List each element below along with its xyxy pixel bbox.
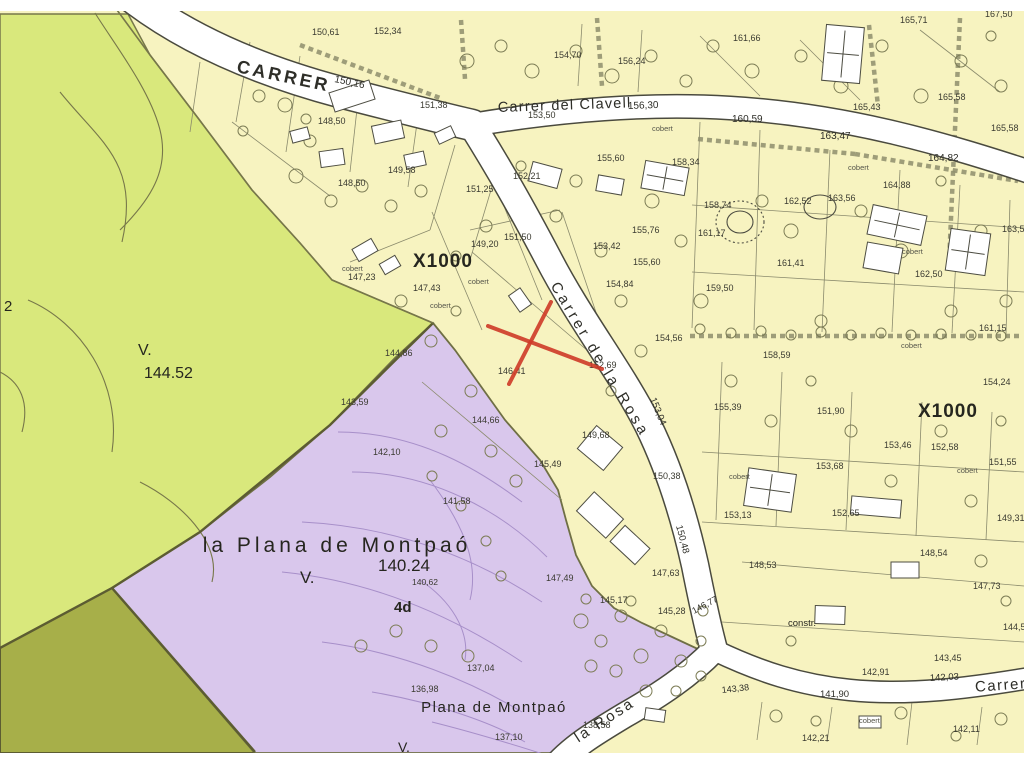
elevation-label: 161,15 [979,323,1007,333]
elevation-label: 147,73 [973,581,1001,591]
elevation-label: 147,63 [652,568,680,578]
elevation-label: 155,39 [714,402,742,412]
elevation-label: 165,43 [853,102,881,112]
road-name-label: 160,59 [732,114,763,125]
map-viewport: 150,61152,34151,38148,50149,58148,50151,… [0,0,1024,768]
cobert-label: cobert [342,264,364,273]
elevation-label: 142,91 [862,667,890,677]
elevation-label: 152,58 [931,442,959,452]
cobert-label: cobert [902,247,924,256]
frame-bottom [0,753,1024,768]
road-junction [701,637,727,663]
road-name-label: 142,03 [930,671,960,684]
elevation-label: 142,11 [953,724,980,734]
elevation-label: 161,17 [698,228,726,238]
elevation-label: 143,45 [934,653,962,663]
elevation-label: 154,70 [554,50,582,60]
cobert-label: cobert [848,163,870,172]
road-name-label: 163,47 [820,131,851,142]
elevation-label: 151,90 [817,406,845,416]
elevation-label: 145,49 [534,459,562,469]
elevation-label: 161,66 [733,33,761,43]
zone-name-label: X1000 [918,401,978,422]
building [863,242,903,274]
elevation-label: 151,50 [504,232,532,242]
elevation-label: 142,21 [802,733,830,743]
elevation-label: 158,59 [763,350,791,360]
elevation-label: 163,54 [1002,224,1024,234]
elevation-label: 155,60 [597,153,625,163]
elevation-label: 150,61 [312,27,340,37]
elevation-label: 153,46 [884,440,912,450]
elevation-label: 140,62 [412,577,438,587]
cobert-label: cobert [729,472,751,481]
zone-name-label: constr. [788,618,816,629]
elevation-label: 153,68 [816,461,844,471]
building [644,708,665,723]
road-name-label: Carrer [974,675,1024,696]
elevation-label: 152,65 [832,508,860,518]
elevation-label: 154,84 [606,279,634,289]
elevation-label: 154,24 [983,377,1011,387]
elevation-label: 145,17 [600,595,628,605]
building [815,605,846,624]
elevation-label: 149,58 [388,165,416,175]
zone-name-label: V. [300,568,315,587]
elevation-label: 137,04 [467,663,495,673]
elevation-label: 165,58 [991,123,1019,133]
elevation-label: 144,66 [472,415,500,425]
elevation-label: 148,50 [338,178,366,188]
zone-name-label: X1000 [413,251,473,272]
elevation-label: 147,23 [348,272,376,282]
zone-name-label: 140.24 [378,556,430,575]
elevation-label: 151,25 [466,184,494,194]
elevation-label: 165,58 [938,92,966,102]
elevation-label: 161,41 [777,258,805,268]
elevation-label: 155,60 [633,257,661,267]
cobert-label: cobert [430,301,452,310]
road-name-label: 141,90 [820,689,849,700]
elevation-label: 153,13 [724,510,752,520]
elevation-label: 164,88 [883,180,911,190]
elevation-label: 165,71 [900,15,928,25]
frame-top [0,0,1024,11]
elevation-label: 149,68 [582,430,610,440]
elevation-label: 162,52 [784,196,812,206]
elevation-label: 144,5 [1003,622,1024,632]
elevation-label: 154,56 [655,333,683,343]
elevation-label: 159,50 [706,283,734,293]
zone-name-label: 4d [394,599,412,616]
elevation-label: 145,28 [658,606,686,616]
elevation-label: 144,86 [385,348,413,358]
cobert-label: cobert [901,341,923,350]
map-canvas: 150,61152,34151,38148,50149,58148,50151,… [0,0,1024,768]
elevation-label: 151,38 [420,100,448,110]
elevation-label: 147,43 [413,283,441,293]
zone-name-label: 2 [4,298,12,315]
elevation-label: 136,98 [411,684,439,694]
zone-name-label: V. [398,739,410,755]
elevation-label: 141,58 [443,496,471,506]
elevation-label: 150,38 [653,471,681,481]
elevation-label: 152,21 [513,171,541,181]
elevation-label: 158,34 [672,157,700,167]
cobert-label: cobert [859,716,881,725]
zone-name-label: 144.52 [144,365,193,382]
zone-name-label: V. [138,342,152,359]
elevation-label: 156,24 [618,56,646,66]
elevation-label: 142,10 [373,447,401,457]
elevation-label: 151,55 [989,457,1017,467]
zone-name-label: Plana de Montpaó [421,699,567,716]
elevation-label: 152,34 [374,26,402,36]
elevation-label: 162,50 [915,269,943,279]
building [319,148,345,167]
elevation-label: 163,56 [828,193,856,203]
cobert-label: cobert [468,277,490,286]
elevation-label: 148,54 [920,548,948,558]
zone-name-label: la Plana de Montpaó [203,534,472,557]
building [891,562,919,578]
elevation-label: 147,49 [546,573,574,583]
elevation-label: 158,74 [704,200,732,210]
elevation-label: 143,59 [341,397,369,407]
elevation-label: 149,31 [997,513,1024,523]
cobert-label: cobert [652,124,674,133]
elevation-label: 149,20 [471,239,499,249]
elevation-label: 148,53 [749,560,777,570]
road-name-label: 156,30 [628,100,659,112]
elevation-label: 148,50 [318,116,346,126]
elevation-label: 137,10 [495,732,523,742]
elevation-label: 153,42 [593,241,621,251]
road-name-label: 164,82 [928,153,959,164]
cobert-label: cobert [957,466,979,475]
elevation-label: 155,76 [632,225,660,235]
